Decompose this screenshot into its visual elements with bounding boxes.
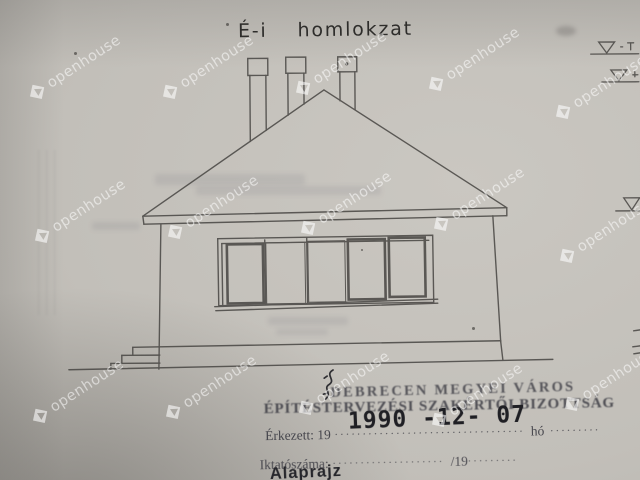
received-label: Érkezett: 19 (265, 427, 331, 443)
edge-ticks (633, 330, 640, 354)
file-suffix: /19 (451, 454, 469, 469)
window-pane-1 (227, 244, 264, 304)
right-wall (493, 216, 501, 342)
entrance-steps (111, 347, 160, 369)
dotted-line: ......... (468, 450, 520, 466)
doc-type-label: Alaprajz (269, 462, 342, 480)
scanned-blueprint-photo: É-ihomlokzat DEBRECEN MEGYEI VÁROS ÉPÍTÉ… (0, 0, 640, 480)
official-stamp: DEBRECEN MEGYEI VÁROS ÉPÍTÉSTERVEZÉSI SZ… (254, 362, 640, 480)
chimney-2 (286, 57, 306, 115)
chimney-3 (338, 57, 357, 110)
drawing-title: É-ihomlokzat (238, 18, 413, 42)
window-pane-5 (389, 237, 426, 297)
floor-line (133, 341, 501, 348)
title-direction: É-i (238, 20, 268, 42)
month-label: hó (531, 423, 545, 438)
title-word: homlokzat (297, 18, 413, 42)
window-band (214, 235, 438, 310)
chimney-1 (248, 58, 269, 141)
dotted-line: ......... (550, 419, 606, 435)
window-pane-2 (266, 242, 306, 304)
plinth-right-edge (501, 342, 503, 360)
window-pane-3 (308, 241, 346, 303)
roof (142, 89, 507, 225)
level-marker-icon (591, 42, 640, 211)
window-pane-4 (348, 239, 386, 300)
dotted-line: .................... (332, 451, 450, 468)
